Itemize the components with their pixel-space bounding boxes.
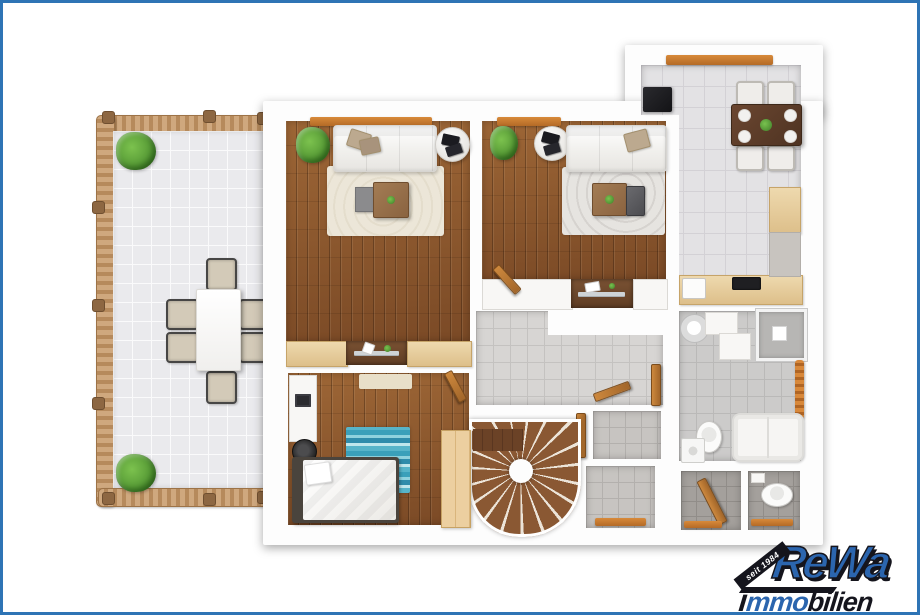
terrace-plant [116, 132, 156, 170]
table-decor [605, 195, 614, 204]
console-niche [346, 341, 407, 365]
threshold [751, 519, 793, 526]
counter-extension [769, 232, 801, 277]
decor-plant [609, 283, 615, 289]
window-sill [497, 117, 561, 126]
railing-post [102, 492, 115, 505]
patio-chair [166, 299, 199, 330]
logo-word-blue: mmo [745, 587, 810, 615]
side-table [355, 187, 375, 212]
tall-cabinet [769, 187, 801, 234]
logo-word-dark: bilien [806, 587, 874, 615]
doormat-rug [359, 374, 412, 389]
desk-niche [571, 279, 633, 308]
washing-machine [681, 438, 705, 463]
round-side-table [435, 127, 470, 162]
towel-radiator [795, 360, 804, 419]
decor-plant [384, 345, 391, 352]
throw-pillow [623, 128, 651, 153]
table-decor [387, 196, 395, 204]
spiral-staircase [469, 419, 581, 537]
dining-table [731, 104, 802, 146]
sofa [566, 125, 667, 172]
stair-landing [473, 429, 523, 451]
indoor-plant [490, 126, 518, 160]
patio-chair [166, 332, 199, 363]
refrigerator [643, 87, 672, 112]
dining-chair [736, 145, 764, 171]
threshold [684, 521, 722, 528]
stair-center-column [509, 459, 533, 483]
railing-post [203, 493, 216, 506]
railing-post [92, 299, 105, 312]
rewa-logo: ReWa seit 1984 immobilien [733, 543, 915, 611]
sideboard [286, 341, 348, 367]
logo-brand: ReWa [770, 539, 891, 585]
railing-post [102, 111, 115, 124]
vanity [705, 312, 738, 335]
centerpiece-plant [760, 119, 772, 131]
shower [756, 309, 807, 361]
plate [784, 130, 797, 143]
wardrobe [441, 430, 471, 528]
counter [633, 279, 668, 310]
coffee-table [373, 182, 409, 218]
throw-pillow [359, 136, 382, 156]
window-sill [666, 55, 773, 65]
counter [482, 279, 573, 310]
desk [289, 375, 317, 442]
railing-post [92, 201, 105, 214]
patio-table [196, 289, 241, 371]
bed [292, 457, 399, 523]
plate [738, 130, 751, 143]
coffee-table [592, 183, 627, 216]
kitchen-sink [682, 278, 706, 299]
terrace-railing-bottom [98, 488, 275, 507]
patio-chair [206, 371, 237, 404]
round-side-table [534, 126, 570, 161]
sideboard [407, 341, 472, 367]
toilet [761, 483, 793, 507]
sink-basin [687, 321, 701, 335]
cistern [751, 473, 765, 483]
indoor-plant [296, 127, 330, 163]
magazine [543, 142, 561, 156]
floor-plan [3, 3, 917, 612]
floor-plan-image: ReWa seit 1984 immobilien [0, 0, 920, 615]
storage-niche-floor [593, 411, 661, 459]
patio-chair [206, 258, 237, 291]
cooktop [732, 277, 761, 290]
logo-wordmark: immobilien [737, 585, 874, 615]
open-door [651, 364, 661, 406]
terrace-plant [116, 454, 156, 492]
shower-drain [772, 326, 787, 341]
tub-divider [767, 417, 769, 458]
desk-chair [626, 186, 645, 216]
railing-post [203, 110, 216, 123]
plate [738, 109, 751, 122]
railing-post [92, 397, 105, 410]
plate [784, 109, 797, 122]
vanity [719, 333, 751, 360]
laptop [295, 394, 311, 407]
bathtub [732, 413, 804, 462]
bed-pillow [304, 461, 333, 485]
dining-chair [767, 145, 795, 171]
threshold [595, 518, 646, 526]
sofa [333, 125, 437, 172]
